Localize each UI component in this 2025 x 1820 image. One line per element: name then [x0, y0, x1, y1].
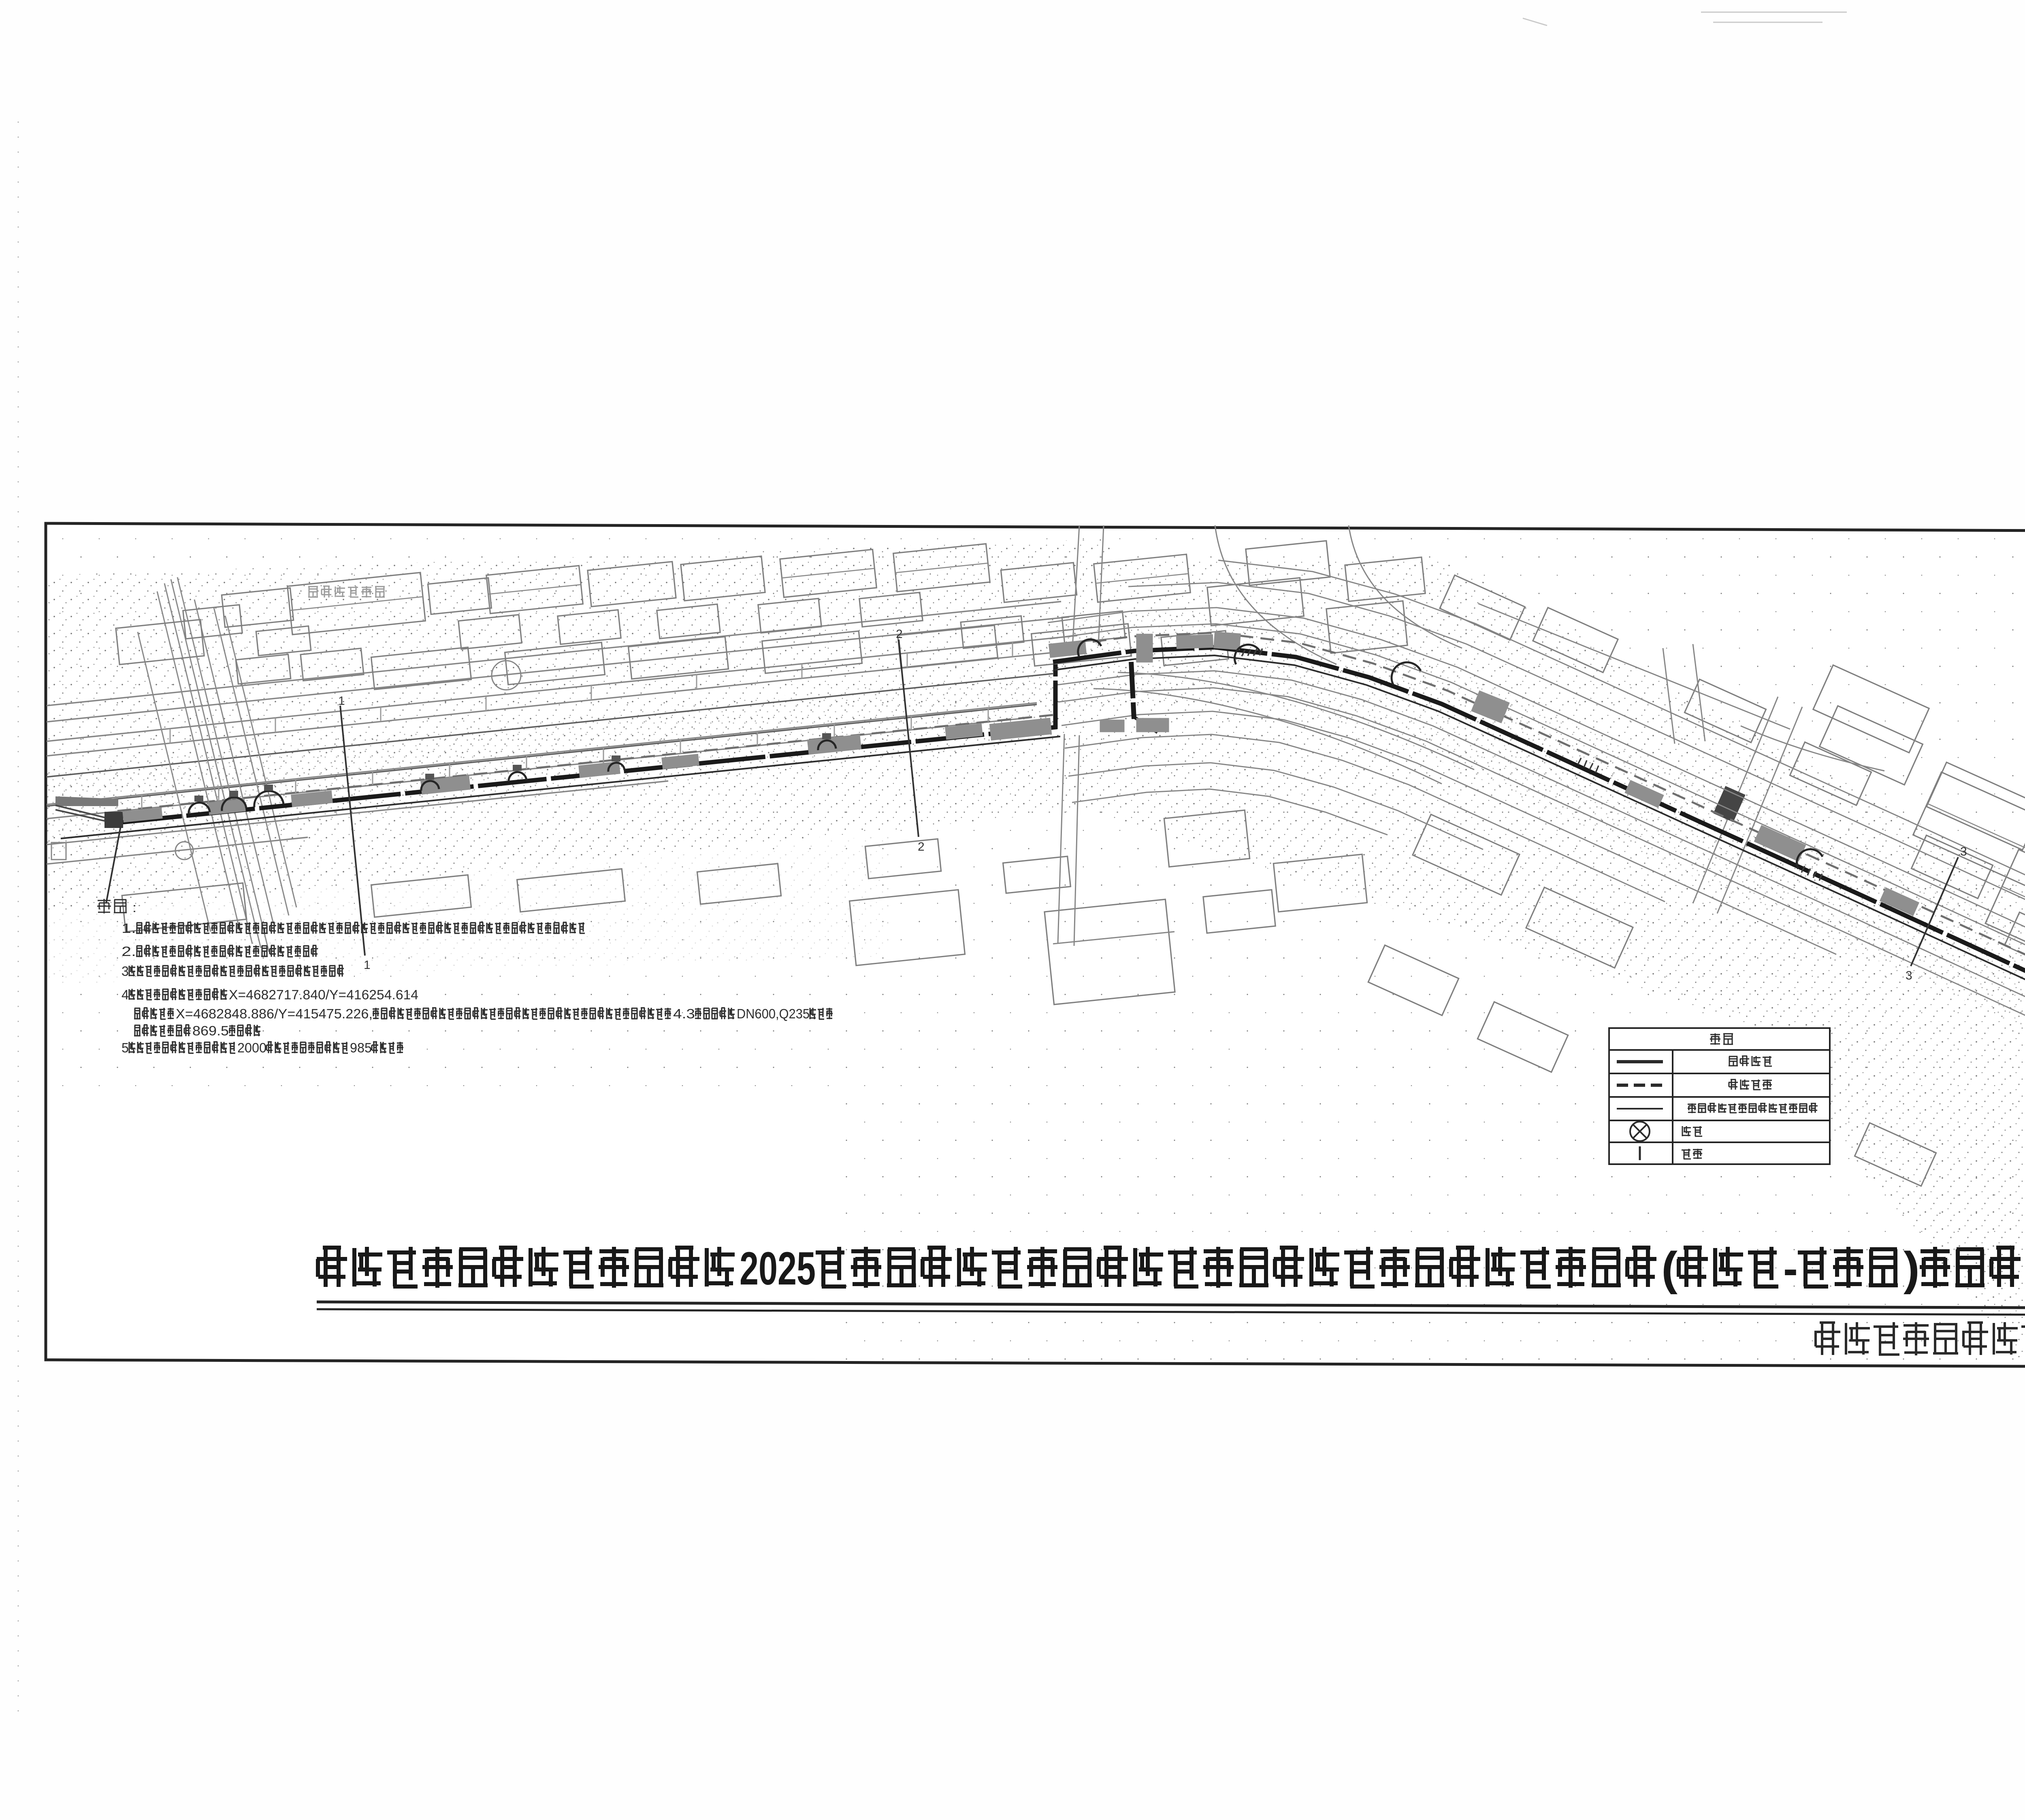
svg-text:): ) [1904, 1243, 1920, 1295]
svg-text:DN600,Q235: DN600,Q235 [737, 1006, 810, 1021]
svg-text:1.: 1. [122, 921, 136, 936]
svg-text:2: 2 [918, 840, 925, 853]
svg-text:2025: 2025 [740, 1243, 816, 1295]
svg-text:X=4682717.840/Y=416254.614: X=4682717.840/Y=416254.614 [229, 987, 418, 1002]
svg-text:4: 4 [122, 987, 129, 1002]
svg-text:1: 1 [338, 694, 345, 708]
svg-text:3: 3 [1906, 969, 1912, 982]
svg-text:4.3: 4.3 [673, 1006, 695, 1021]
svg-text:3: 3 [1960, 845, 1967, 858]
svg-text:1: 1 [364, 958, 371, 972]
svg-text:2: 2 [896, 627, 903, 641]
svg-text:X=4682848.886/Y=415475.226,: X=4682848.886/Y=415475.226, [176, 1006, 373, 1021]
svg-text:985: 985 [350, 1040, 372, 1055]
svg-text:3: 3 [122, 964, 129, 979]
svg-text:5: 5 [122, 1040, 129, 1055]
svg-text:869.5: 869.5 [192, 1023, 229, 1038]
svg-text:-: - [1783, 1243, 1798, 1295]
svg-text:2000: 2000 [237, 1040, 266, 1055]
svg-text:2.: 2. [122, 944, 136, 959]
svg-text:(: ( [1661, 1243, 1678, 1295]
